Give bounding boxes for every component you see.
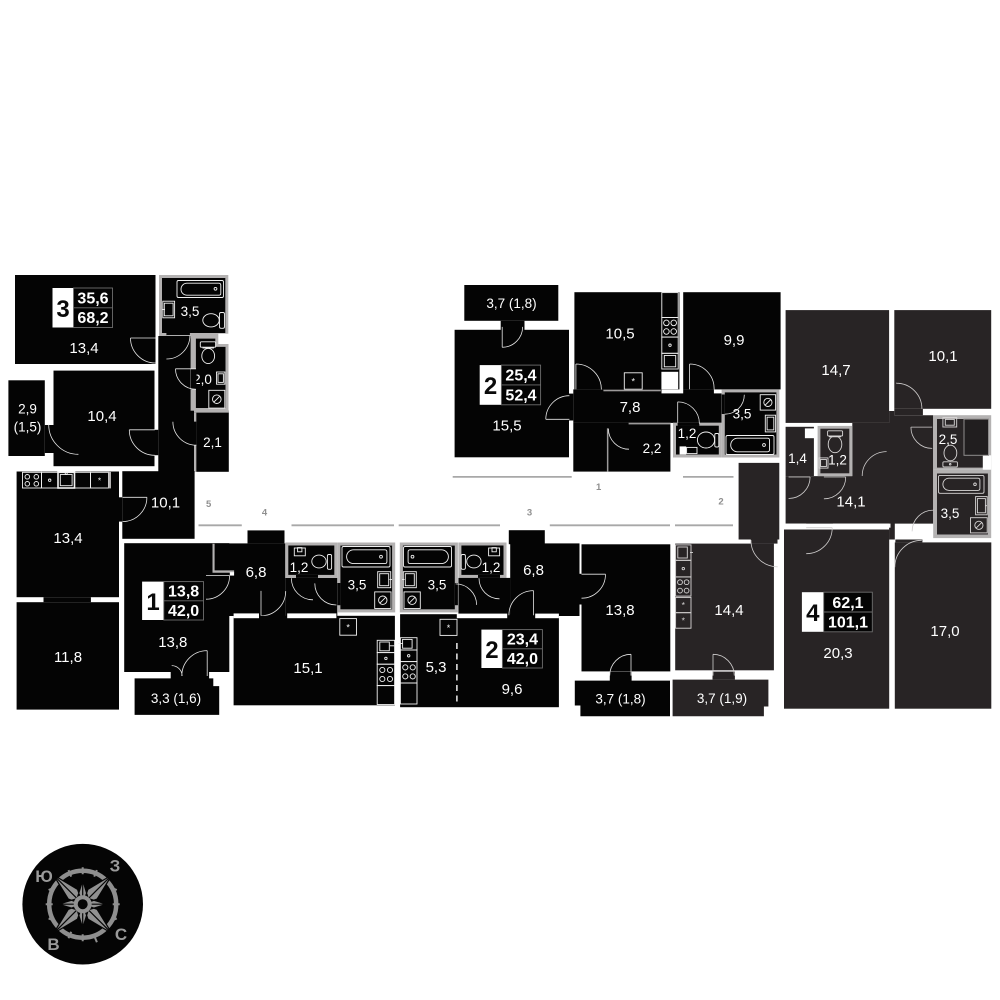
svg-text:35,6: 35,6 (77, 291, 108, 308)
svg-text:3,5: 3,5 (941, 506, 960, 521)
svg-text:4: 4 (806, 600, 820, 627)
svg-text:3,5: 3,5 (428, 578, 447, 593)
svg-text:2: 2 (484, 373, 497, 400)
svg-text:62,1: 62,1 (832, 595, 863, 612)
svg-text:10,4: 10,4 (87, 408, 116, 425)
svg-text:3,7 (1,9): 3,7 (1,9) (697, 691, 747, 706)
svg-text:9,9: 9,9 (724, 332, 745, 349)
svg-text:11,8: 11,8 (54, 649, 82, 666)
svg-text:3,5: 3,5 (348, 578, 367, 593)
svg-text:1,2: 1,2 (482, 560, 501, 575)
svg-text:1: 1 (146, 589, 159, 616)
svg-text:3,5: 3,5 (181, 304, 200, 319)
svg-text:2: 2 (485, 637, 498, 664)
svg-text:3: 3 (527, 508, 532, 519)
svg-text:2,5: 2,5 (939, 432, 958, 447)
svg-text:42,0: 42,0 (507, 651, 538, 668)
svg-text:6,8: 6,8 (246, 564, 267, 581)
svg-text:5,3: 5,3 (426, 659, 447, 676)
svg-text:23,4: 23,4 (507, 632, 538, 649)
svg-text:7,8: 7,8 (620, 399, 641, 416)
svg-text:С: С (115, 925, 127, 944)
svg-text:14,7: 14,7 (821, 362, 850, 379)
svg-text:14,1: 14,1 (836, 493, 865, 510)
svg-text:20,3: 20,3 (823, 645, 852, 662)
svg-text:15,1: 15,1 (293, 660, 322, 677)
svg-text:10,1: 10,1 (151, 494, 180, 511)
svg-text:3,3 (1,6): 3,3 (1,6) (151, 691, 201, 706)
svg-text:9,6: 9,6 (502, 681, 523, 698)
svg-text:(1,5): (1,5) (14, 419, 42, 434)
svg-text:2,9: 2,9 (18, 401, 37, 416)
svg-text:З: З (110, 857, 121, 876)
svg-text:101,1: 101,1 (828, 614, 868, 631)
svg-text:1,2: 1,2 (290, 560, 309, 575)
svg-text:25,4: 25,4 (505, 368, 536, 385)
svg-text:1,2: 1,2 (678, 426, 697, 441)
svg-text:6,8: 6,8 (523, 562, 544, 579)
svg-text:14,4: 14,4 (714, 602, 743, 619)
svg-text:*: * (631, 377, 635, 387)
svg-text:3: 3 (56, 296, 69, 323)
svg-text:2,2: 2,2 (643, 441, 662, 456)
svg-text:4: 4 (262, 508, 268, 519)
svg-text:1: 1 (596, 482, 602, 493)
svg-text:1,4: 1,4 (788, 451, 807, 466)
svg-text:*: * (447, 623, 451, 633)
svg-text:42,0: 42,0 (168, 603, 199, 620)
svg-text:10,5: 10,5 (605, 326, 634, 343)
svg-text:2,1: 2,1 (203, 435, 222, 450)
svg-text:3,5: 3,5 (733, 407, 752, 422)
svg-text:52,4: 52,4 (505, 387, 536, 404)
svg-text:В: В (47, 935, 59, 954)
svg-text:13,8: 13,8 (605, 602, 634, 619)
svg-text:15,5: 15,5 (492, 418, 521, 435)
svg-text:13,8: 13,8 (168, 584, 199, 601)
svg-text:13,4: 13,4 (53, 530, 82, 547)
svg-text:68,2: 68,2 (77, 310, 108, 327)
svg-text:2: 2 (718, 497, 723, 508)
svg-text:17,0: 17,0 (930, 623, 959, 640)
svg-text:13,8: 13,8 (158, 634, 187, 651)
svg-text:1,2: 1,2 (828, 453, 847, 468)
svg-text:3,7 (1,8): 3,7 (1,8) (486, 296, 536, 311)
svg-text:10,1: 10,1 (928, 348, 957, 365)
svg-text:13,4: 13,4 (69, 340, 98, 357)
svg-text:*: * (346, 623, 350, 633)
svg-text:Ю: Ю (35, 867, 53, 886)
svg-text:5: 5 (206, 499, 212, 510)
svg-text:3,7 (1,8): 3,7 (1,8) (595, 691, 645, 706)
